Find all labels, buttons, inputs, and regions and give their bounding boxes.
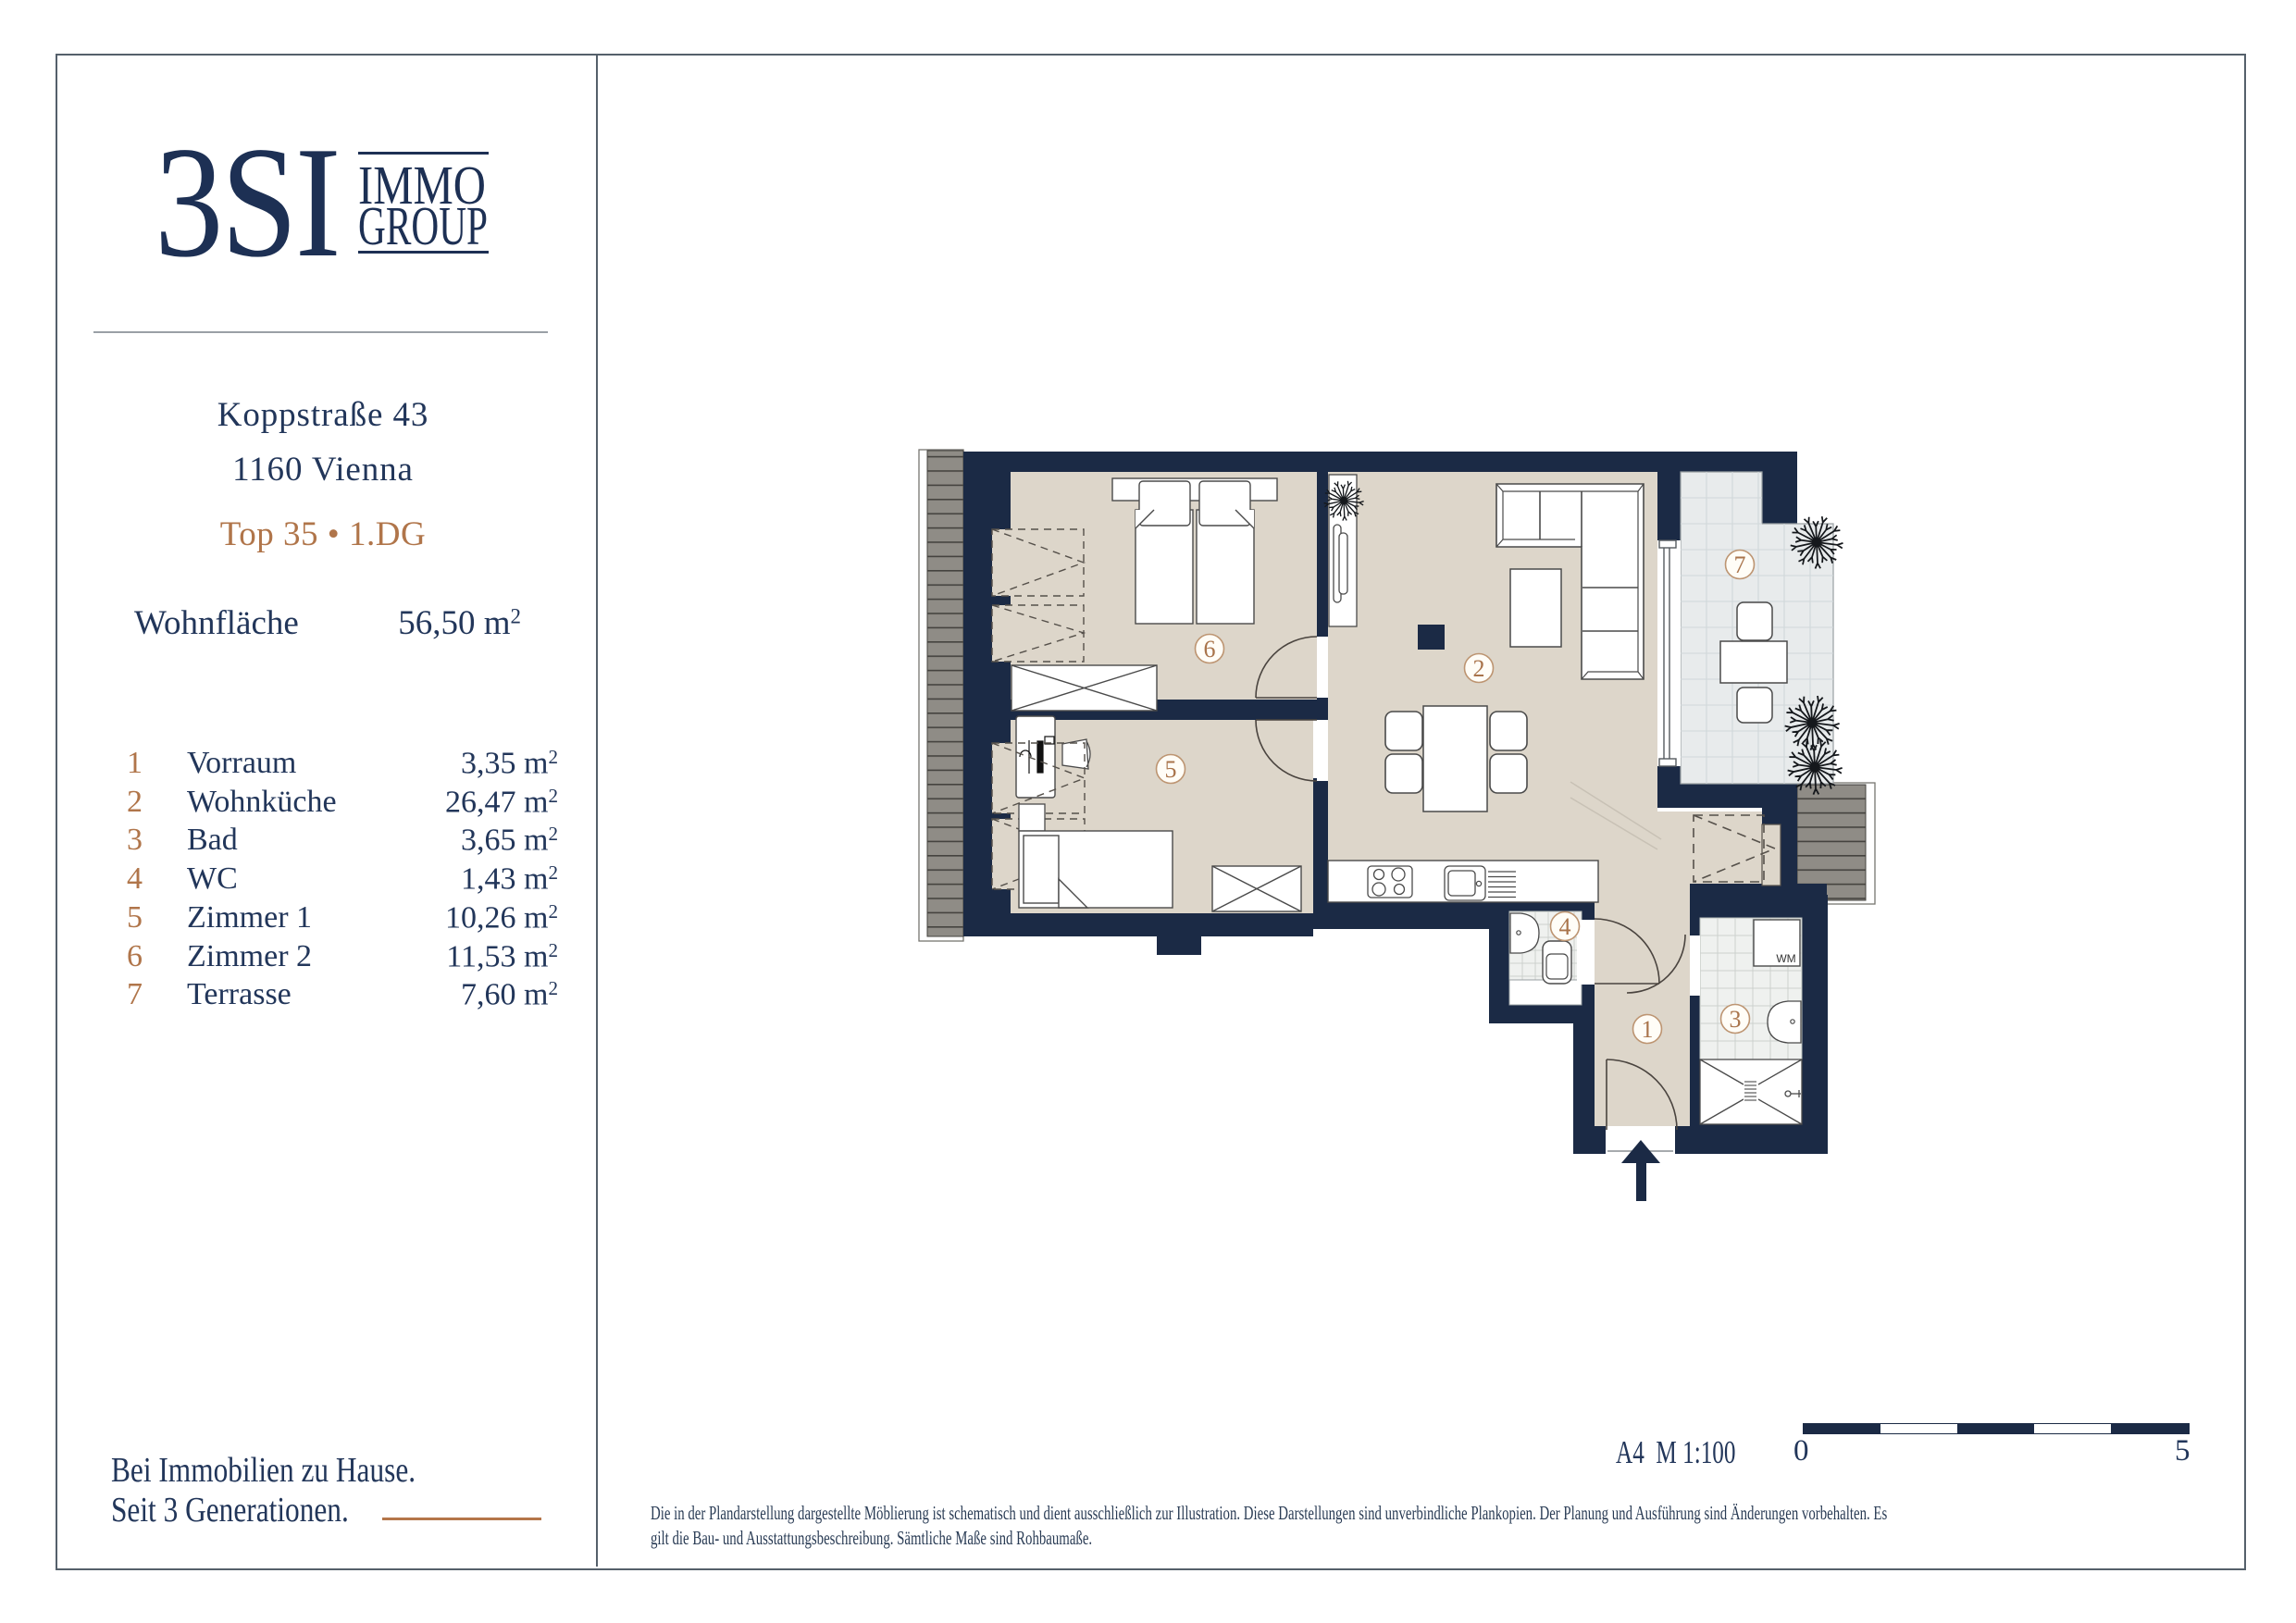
svg-text:3: 3 bbox=[1730, 1006, 1742, 1033]
svg-text:5: 5 bbox=[1165, 756, 1177, 783]
svg-text:1: 1 bbox=[1642, 1016, 1654, 1043]
svg-text:7: 7 bbox=[1734, 551, 1746, 578]
svg-text:2: 2 bbox=[1473, 655, 1485, 682]
svg-text:6: 6 bbox=[1204, 636, 1216, 663]
svg-text:WM: WM bbox=[1776, 952, 1795, 965]
svg-text:4: 4 bbox=[1559, 913, 1571, 940]
